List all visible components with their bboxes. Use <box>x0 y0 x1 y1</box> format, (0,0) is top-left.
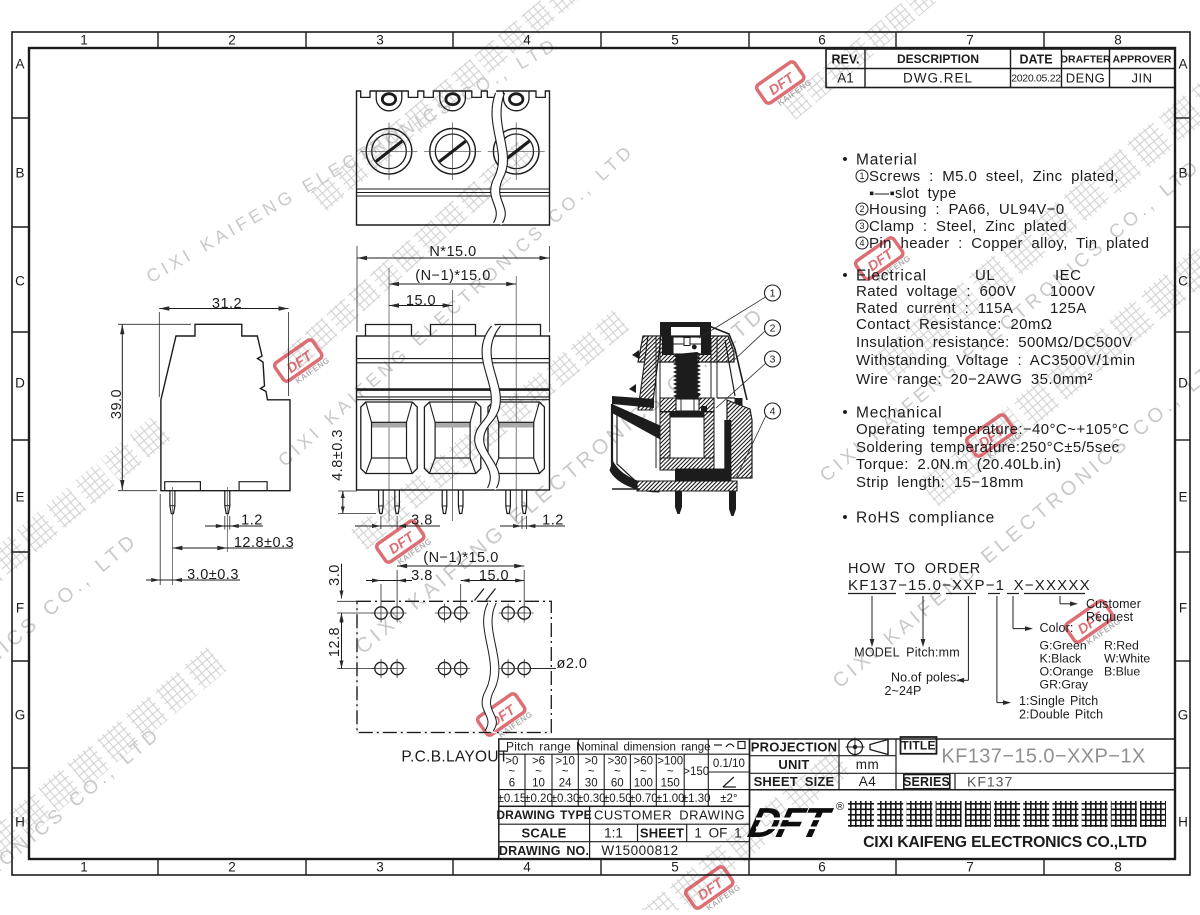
svg-text:Rated current : 115A: Rated current : 115A <box>856 300 1013 317</box>
svg-text:2: 2 <box>228 860 236 875</box>
svg-text:8: 8 <box>1114 33 1122 48</box>
svg-text:®: ® <box>836 801 844 813</box>
svg-text:12.8: 12.8 <box>327 627 343 657</box>
svg-text:C: C <box>1178 274 1188 289</box>
svg-text:DRAWING TYPE: DRAWING TYPE <box>496 808 591 822</box>
svg-text:3.8: 3.8 <box>411 568 433 584</box>
svg-text:A4: A4 <box>859 774 877 789</box>
svg-text:Mechanical: Mechanical <box>856 404 942 421</box>
svg-text:B: B <box>1178 166 1187 181</box>
svg-text:F: F <box>1179 601 1187 616</box>
svg-text:B: B <box>15 166 24 181</box>
svg-text:P.C.B.LAYOUT: P.C.B.LAYOUT <box>401 748 508 765</box>
svg-text:±1.00: ±1.00 <box>656 793 685 805</box>
svg-text:D: D <box>15 376 25 391</box>
svg-text:RoHS compliance: RoHS compliance <box>856 509 995 526</box>
svg-text:•: • <box>842 404 847 421</box>
svg-text:150: 150 <box>661 778 680 790</box>
svg-text:1:1: 1:1 <box>604 826 623 841</box>
svg-text:24: 24 <box>559 778 572 790</box>
svg-text:•: • <box>842 151 847 168</box>
svg-text:4: 4 <box>770 406 776 418</box>
svg-text:SERIES: SERIES <box>903 775 950 789</box>
svg-text:A1: A1 <box>837 71 854 86</box>
svg-text:30: 30 <box>585 778 598 790</box>
svg-text:APPROVER: APPROVER <box>1113 54 1172 66</box>
svg-text:±0.30: ±0.30 <box>551 793 580 805</box>
svg-text:15.0: 15.0 <box>479 568 509 584</box>
svg-text:MODEL: MODEL <box>854 645 899 659</box>
svg-text:15.0: 15.0 <box>406 293 436 309</box>
svg-text:2: 2 <box>228 33 236 48</box>
svg-text:DESCRIPTION: DESCRIPTION <box>897 52 979 66</box>
svg-text:K:Black: K:Black <box>1040 651 1083 665</box>
svg-text:B:Blue: B:Blue <box>1104 664 1140 678</box>
svg-text:2: 2 <box>770 323 776 335</box>
svg-text:Pitch:mm: Pitch:mm <box>906 645 960 659</box>
svg-text:±0.15: ±0.15 <box>498 793 527 805</box>
svg-text:G:Green: G:Green <box>1040 638 1087 652</box>
svg-text:3: 3 <box>376 33 384 48</box>
svg-text:1:Single Pitch: 1:Single Pitch <box>1019 694 1098 708</box>
svg-text:E: E <box>15 490 24 505</box>
svg-text:•: • <box>842 267 847 284</box>
svg-text:3: 3 <box>770 354 776 366</box>
svg-text:Color:: Color: <box>1040 621 1074 635</box>
svg-text:E: E <box>1178 490 1187 505</box>
svg-text:6: 6 <box>818 860 826 875</box>
svg-text:100: 100 <box>634 778 653 790</box>
svg-text:W15000812: W15000812 <box>601 843 678 858</box>
svg-text:PROJECTION: PROJECTION <box>751 740 838 755</box>
svg-text:Operating temperature:−40°C~+1: Operating temperature:−40°C~+105°C <box>856 421 1129 438</box>
svg-text:KF137−15.0−XXP−1 X−XXXXX: KF137−15.0−XXP−1 X−XXXXX <box>848 577 1091 594</box>
svg-text:H: H <box>15 815 25 830</box>
svg-text:Strip length: 15−18mm: Strip length: 15−18mm <box>856 474 1024 491</box>
svg-text:G: G <box>1178 708 1189 723</box>
svg-text:Torque: 2.0N.m (20.40Lb.in): Torque: 2.0N.m (20.40Lb.in) <box>856 456 1062 473</box>
svg-text:±2°: ±2° <box>720 793 737 805</box>
svg-text:Pin header : Copper alloy, Tin: Pin header : Copper alloy, Tin plated <box>869 235 1149 252</box>
svg-text:3.8: 3.8 <box>411 513 433 529</box>
svg-text:(N−1)*15.0: (N−1)*15.0 <box>415 268 491 284</box>
svg-text:KF137: KF137 <box>967 773 1013 789</box>
svg-text:D: D <box>1178 376 1188 391</box>
svg-text:HOW TO ORDER: HOW TO ORDER <box>848 561 981 577</box>
svg-text:1000V: 1000V <box>1050 283 1095 300</box>
svg-text:~: ~ <box>535 766 542 778</box>
svg-text:1: 1 <box>859 171 864 181</box>
svg-text:31.2: 31.2 <box>212 296 242 312</box>
svg-text:1.2: 1.2 <box>241 513 263 529</box>
svg-text:REV.: REV. <box>831 52 859 66</box>
svg-text:7: 7 <box>966 860 974 875</box>
svg-text:~: ~ <box>509 766 516 778</box>
svg-text:Rated voltage : 600V: Rated voltage : 600V <box>856 283 1016 300</box>
svg-text:12.8±0.3: 12.8±0.3 <box>234 535 294 551</box>
svg-text:2~24P: 2~24P <box>885 684 922 698</box>
svg-text:UNIT: UNIT <box>778 757 809 772</box>
svg-text:±1.30: ±1.30 <box>682 793 711 805</box>
svg-text:1: 1 <box>80 33 88 48</box>
svg-text:DRAWING NO.: DRAWING NO. <box>499 844 589 858</box>
svg-text:F: F <box>16 601 24 616</box>
svg-text:Nominal dimension range: Nominal dimension range <box>576 742 710 754</box>
svg-text:KF137−15.0−XXP−1X: KF137−15.0−XXP−1X <box>941 746 1145 768</box>
svg-text:3: 3 <box>376 860 384 875</box>
svg-text:7: 7 <box>966 33 974 48</box>
svg-text:CIXI KAIFENG ELECTRONICS CO.,L: CIXI KAIFENG ELECTRONICS CO.,LTD <box>863 834 1147 851</box>
svg-text:±0.20: ±0.20 <box>524 793 553 805</box>
svg-text:CUSTOMER DRAWING: CUSTOMER DRAWING <box>594 808 745 823</box>
svg-text:2020.05.22: 2020.05.22 <box>1011 73 1061 85</box>
svg-text:6: 6 <box>509 778 515 790</box>
svg-text:▪—▪slot type: ▪—▪slot type <box>869 186 957 202</box>
svg-text:W:White: W:White <box>1104 651 1150 665</box>
svg-text:>150: >150 <box>683 766 709 778</box>
svg-text:2: 2 <box>859 204 864 214</box>
svg-text:Contact Resistance: 20mΩ: Contact Resistance: 20mΩ <box>856 316 1052 333</box>
svg-text:R:Red: R:Red <box>1104 638 1139 652</box>
svg-text:SCALE: SCALE <box>521 826 566 841</box>
svg-text:±0.70: ±0.70 <box>629 793 658 805</box>
svg-text:IEC: IEC <box>1055 267 1082 284</box>
svg-text:TITLE: TITLE <box>901 739 935 753</box>
svg-text:1 OF 1: 1 OF 1 <box>694 826 741 841</box>
svg-text:3.0: 3.0 <box>327 564 343 586</box>
svg-text:10: 10 <box>532 778 545 790</box>
svg-text:Withstanding Voltage : AC3500V: Withstanding Voltage : AC3500V/1min <box>856 352 1136 369</box>
svg-text:SHEET SIZE: SHEET SIZE <box>754 774 835 789</box>
svg-text:1: 1 <box>770 288 776 300</box>
svg-text:~: ~ <box>588 766 595 778</box>
svg-text:No.of poles:: No.of poles: <box>891 670 960 684</box>
svg-text:4: 4 <box>523 860 531 875</box>
svg-text:Wire range: 20−2AWG 35.0mm²: Wire range: 20−2AWG 35.0mm² <box>856 371 1093 388</box>
svg-text:3: 3 <box>859 221 864 231</box>
svg-text:~: ~ <box>614 766 621 778</box>
svg-text:Pitch range: Pitch range <box>506 740 571 754</box>
svg-text:O:Orange: O:Orange <box>1040 664 1094 678</box>
svg-text:1: 1 <box>80 860 88 875</box>
svg-text:60: 60 <box>611 778 624 790</box>
svg-text:5: 5 <box>671 33 679 48</box>
svg-text:±0.50: ±0.50 <box>603 793 632 805</box>
svg-text:Request: Request <box>1086 610 1134 624</box>
svg-text:Housing : PA66, UL94V−0: Housing : PA66, UL94V−0 <box>869 201 1065 218</box>
svg-text:DENG: DENG <box>1066 71 1106 86</box>
svg-text:G: G <box>15 708 26 723</box>
svg-text:DWG.REL: DWG.REL <box>903 71 973 86</box>
svg-text:(N−1)*15.0: (N−1)*15.0 <box>423 550 499 566</box>
svg-text:DRAFTER: DRAFTER <box>1060 54 1111 66</box>
svg-text:A: A <box>1178 57 1187 72</box>
svg-text:~: ~ <box>667 766 674 778</box>
svg-text:0.1/10: 0.1/10 <box>713 758 745 770</box>
svg-text:2:Double Pitch: 2:Double Pitch <box>1019 707 1103 721</box>
svg-text:4: 4 <box>523 33 531 48</box>
svg-text:Clamp : Steel, Zinc plated: Clamp : Steel, Zinc plated <box>869 218 1067 235</box>
svg-text:3.0±0.3: 3.0±0.3 <box>187 567 239 583</box>
svg-text:±0.30: ±0.30 <box>577 793 606 805</box>
svg-text:6: 6 <box>818 33 826 48</box>
svg-text:C: C <box>15 274 25 289</box>
svg-text:Soldering temperature:250°C±5/: Soldering temperature:250°C±5/5sec <box>856 439 1120 456</box>
svg-text:~: ~ <box>562 766 569 778</box>
svg-text:Insulation resistance: 500MΩ/D: Insulation resistance: 500MΩ/DC500V <box>856 334 1133 351</box>
svg-text:UL: UL <box>975 267 995 284</box>
svg-text:GR:Gray: GR:Gray <box>1040 677 1089 691</box>
svg-text:~: ~ <box>640 766 647 778</box>
svg-text:1.2: 1.2 <box>542 513 564 529</box>
svg-text:Screws : M5.0 steel, Zinc plat: Screws : M5.0 steel, Zinc plated, <box>869 168 1119 185</box>
svg-text:Material: Material <box>856 151 918 168</box>
svg-text:JIN: JIN <box>1132 71 1153 86</box>
svg-text:ø2.0: ø2.0 <box>556 656 587 672</box>
svg-text:4: 4 <box>859 238 864 248</box>
svg-text:SHEET: SHEET <box>640 826 684 841</box>
svg-text:H: H <box>1178 815 1188 830</box>
svg-text:Electrical: Electrical <box>856 267 927 284</box>
svg-text:125A: 125A <box>1050 300 1087 317</box>
svg-text:DATE: DATE <box>1019 52 1052 66</box>
svg-text:5: 5 <box>671 860 679 875</box>
svg-text:A: A <box>15 57 24 72</box>
svg-text:4.8±0.3: 4.8±0.3 <box>330 429 346 481</box>
svg-text:mm: mm <box>856 757 880 772</box>
svg-text:8: 8 <box>1114 860 1122 875</box>
svg-text:•: • <box>842 509 847 526</box>
